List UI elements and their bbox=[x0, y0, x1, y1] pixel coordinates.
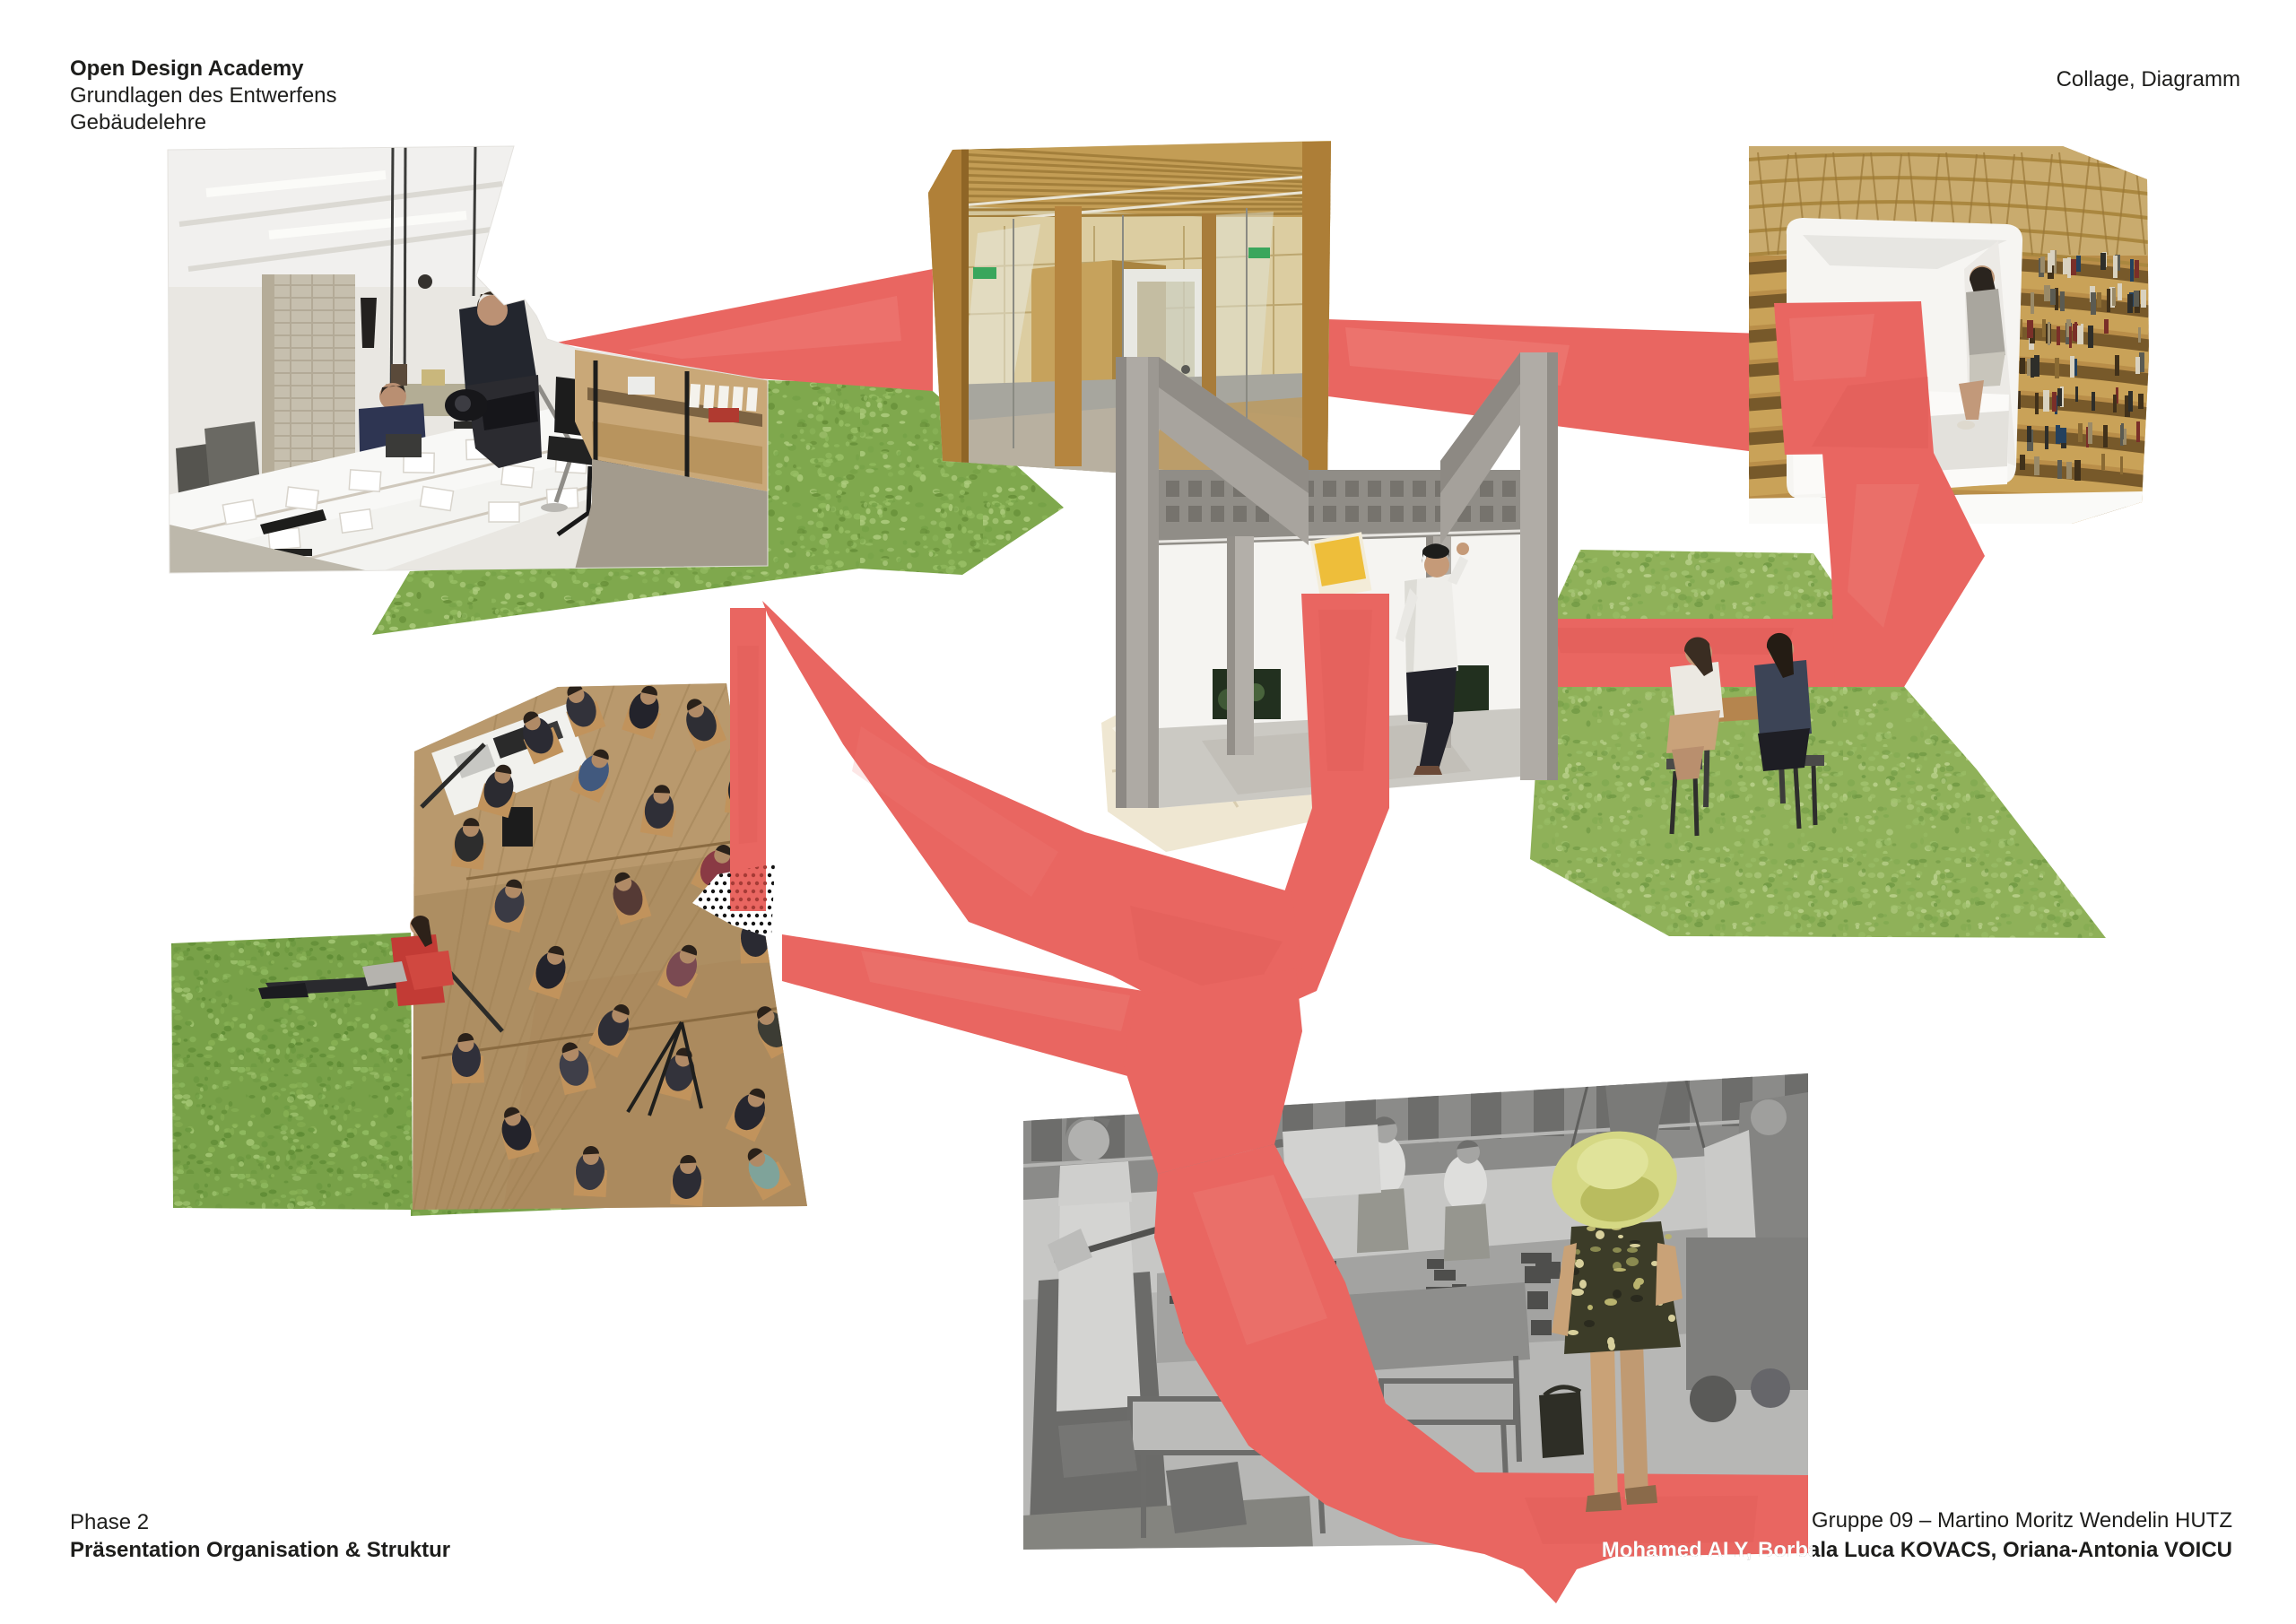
svg-text:Open Design Academy: Open Design Academy bbox=[70, 56, 304, 81]
svg-text:Gruppe 09 – Martino Moritz Wen: Gruppe 09 – Martino Moritz Wendelin HUTZ bbox=[1812, 1508, 2232, 1533]
svg-text:Präsentation Organisation & St: Präsentation Organisation & Struktur bbox=[70, 1538, 450, 1562]
svg-text:Grundlagen des Entwerfens: Grundlagen des Entwerfens bbox=[70, 83, 337, 108]
svg-text:Collage, Diagramm: Collage, Diagramm bbox=[2057, 67, 2240, 91]
svg-text:Phase 2: Phase 2 bbox=[70, 1510, 149, 1534]
svg-text:Gebäudelehre: Gebäudelehre bbox=[70, 110, 206, 135]
